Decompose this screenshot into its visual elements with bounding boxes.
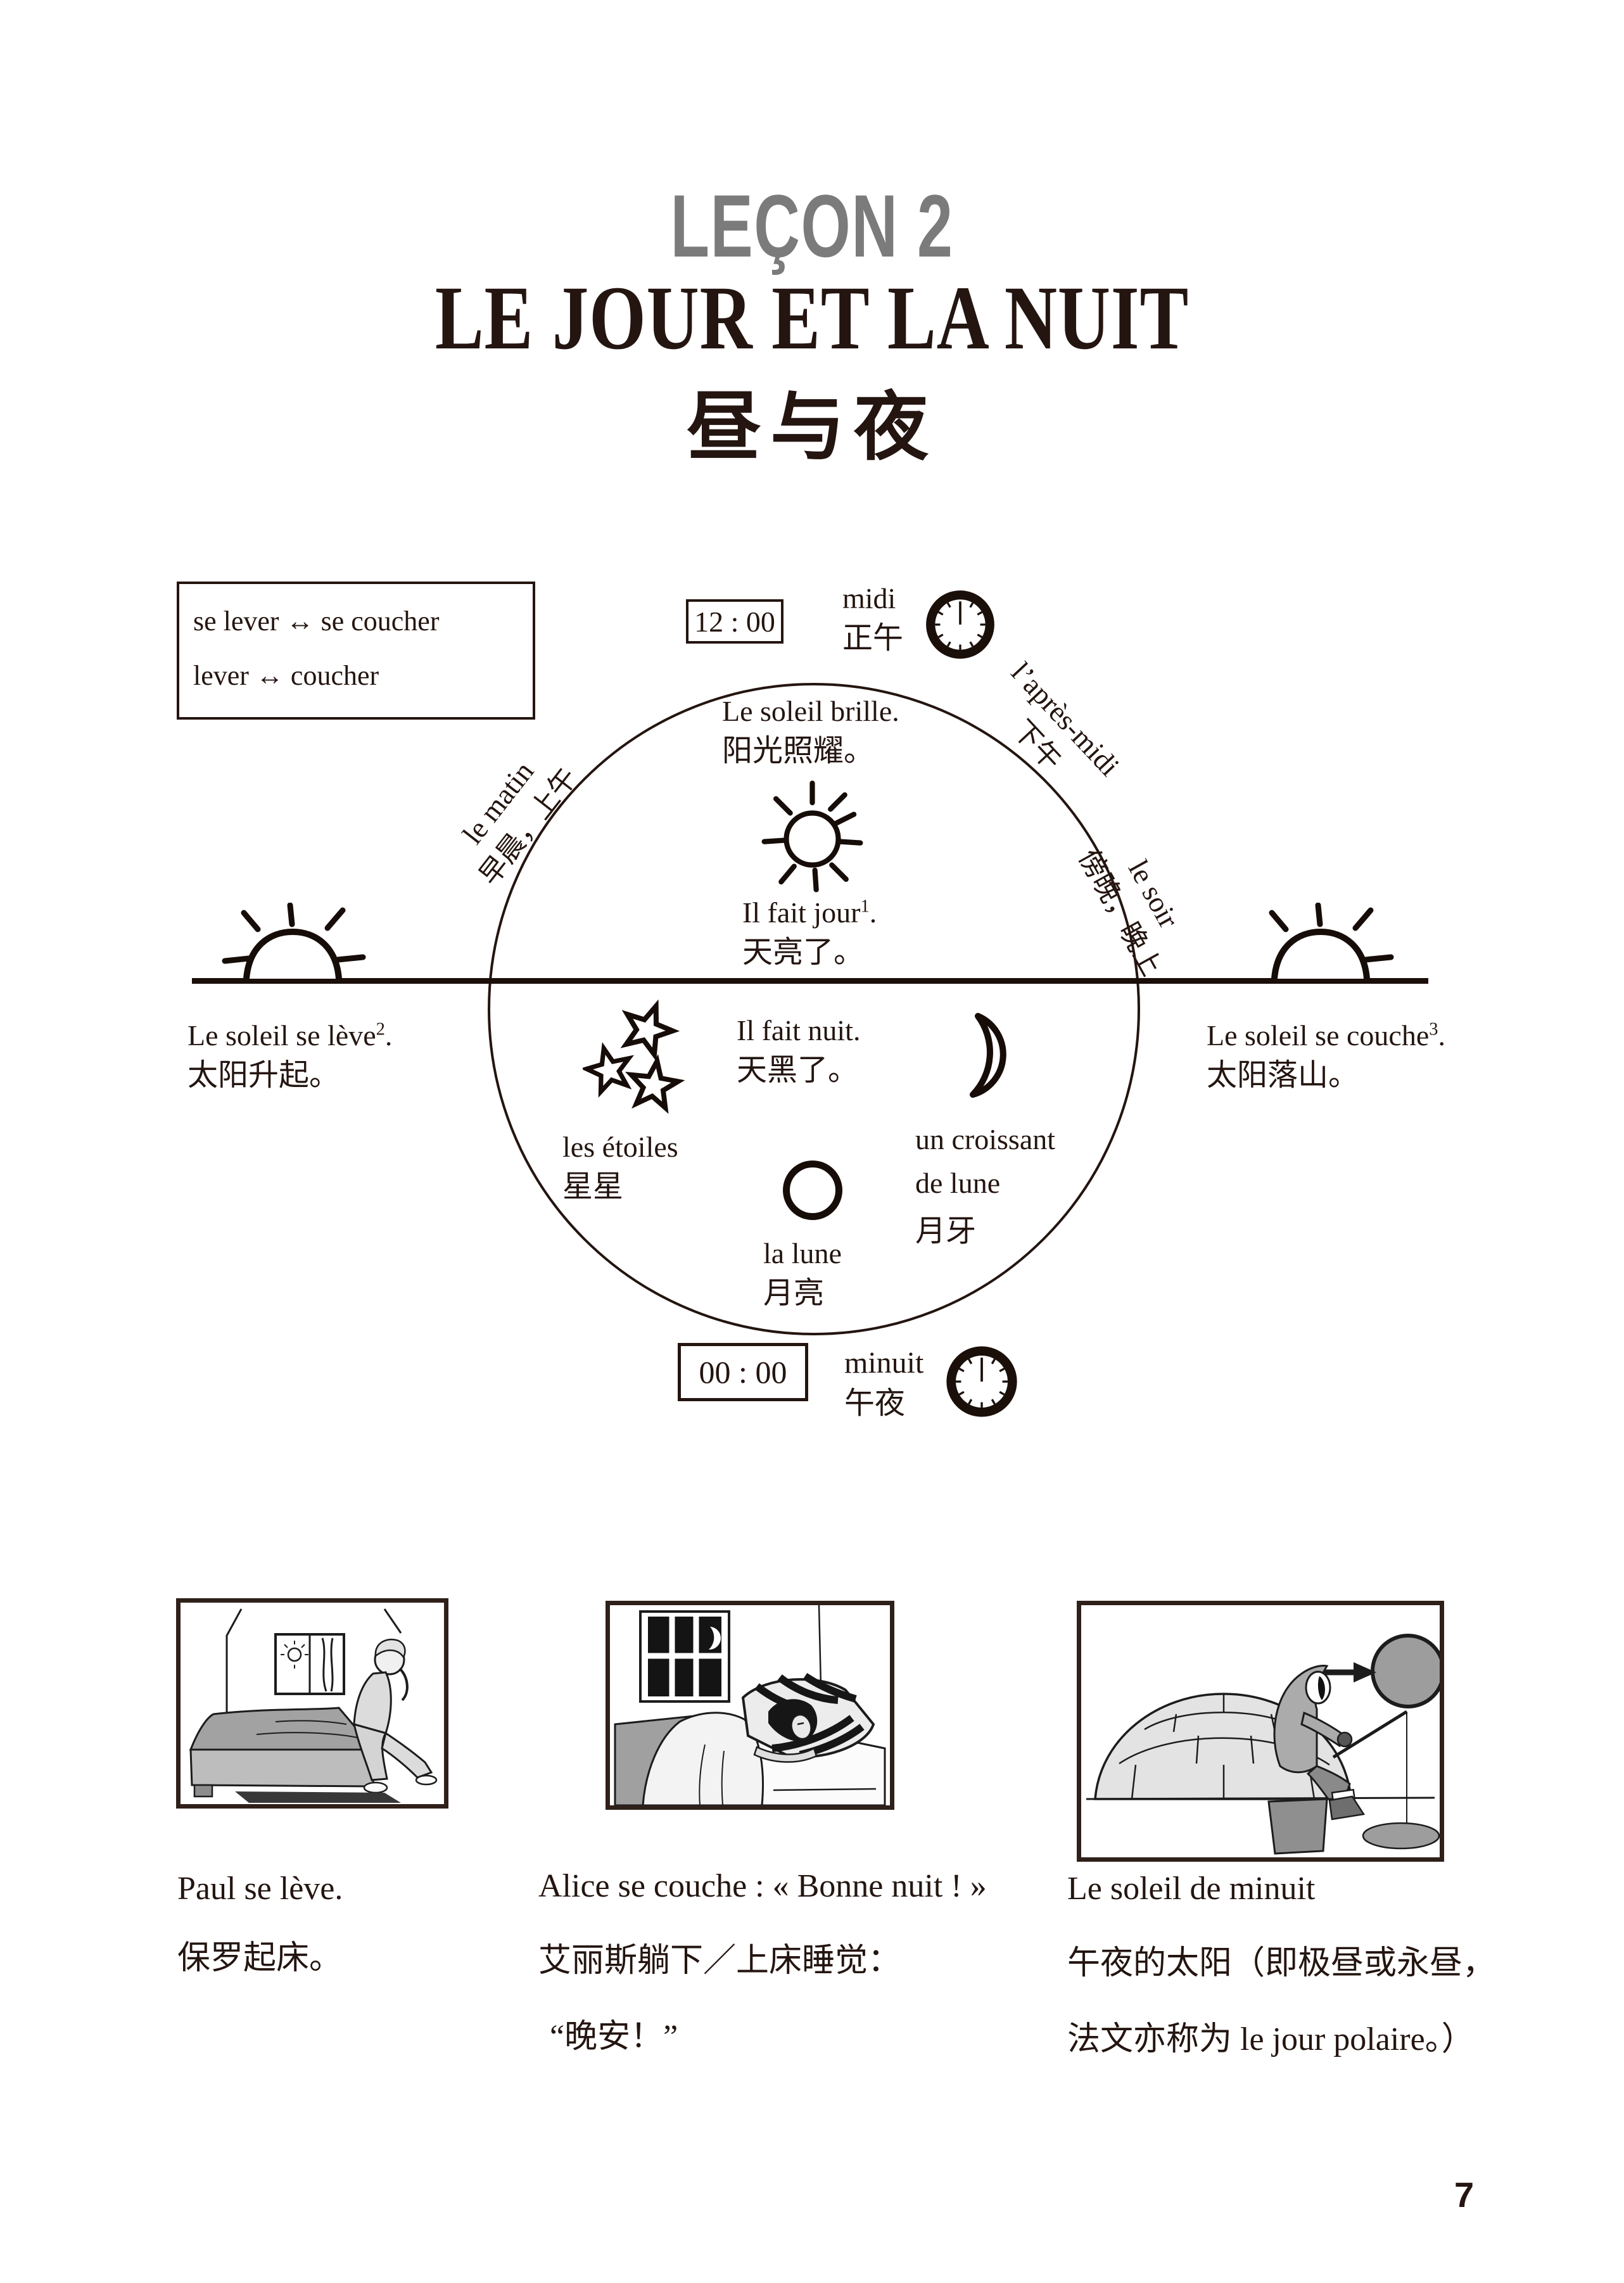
vocab-line-2: lever ↔ coucher	[193, 649, 533, 703]
ice-horizon-line	[1086, 1798, 1435, 1799]
moon-label-fr: la lune	[763, 1237, 842, 1269]
stars-label-zh: 星星	[562, 1172, 678, 1202]
figure-paul-drawing	[181, 1603, 444, 1804]
sun-shines-label: Le soleil brille. 阳光照耀。	[722, 697, 899, 766]
paul-torso	[354, 1672, 391, 1733]
it-is-night-zh: 天黑了。	[737, 1055, 860, 1086]
figure-alice	[606, 1601, 894, 1810]
hood-opening	[1306, 1672, 1330, 1703]
vocab-box: se lever ↔ se coucher lever ↔ coucher	[177, 582, 535, 720]
ice-hole	[1363, 1823, 1439, 1848]
paul-leg-right	[382, 1733, 431, 1777]
stars-label-fr: les étoiles	[562, 1131, 678, 1163]
caption-alice-fr: Alice se couche : « Bonne nuit ! »	[538, 1867, 987, 1905]
window-with-sun	[276, 1634, 344, 1694]
wall-line	[819, 1605, 821, 1686]
sunrise-label-zh: 太阳升起。	[187, 1060, 392, 1091]
sunrise-label-fr: Le soleil se lève2.	[187, 1019, 392, 1052]
textbook-page: LEÇON 2 LE JOUR ET LA NUIT 昼与夜 se lever …	[0, 0, 1624, 2283]
crescent-moon-icon	[949, 1011, 1012, 1100]
crescent-label-fr1: un croissant	[915, 1117, 1055, 1161]
crescent-label-fr2: de lune	[915, 1161, 1055, 1205]
midnight-sun-icon	[1373, 1636, 1440, 1707]
clock-midnight-icon	[942, 1342, 1022, 1421]
midi-time: 12 : 00	[694, 605, 775, 639]
sun-icon	[747, 774, 877, 904]
minuit-time-box: 00 : 00	[678, 1343, 808, 1401]
crescent-label: un croissant de lune 月牙	[915, 1117, 1055, 1254]
sunset-label-fr: Le soleil se couche3.	[1207, 1019, 1445, 1052]
figure-alice-drawing	[610, 1605, 890, 1805]
stool	[1269, 1799, 1327, 1854]
caption-alice-zh-line1: 艾丽斯躺下／上床睡觉：	[538, 1933, 901, 1981]
stars-label: les étoiles 星星	[562, 1133, 678, 1202]
it-is-night-label: Il fait nuit. 天黑了。	[737, 1016, 860, 1086]
moon-label: la lune 月亮	[763, 1239, 842, 1309]
caption-paul-fr: Paul se lève.	[177, 1870, 343, 1907]
stars-icon	[583, 1000, 694, 1117]
figure-midnight-sun-drawing	[1081, 1605, 1440, 1857]
it-is-day-label: Il fait jour1. 天亮了。	[742, 898, 877, 968]
footnote-3-marker: 3	[1429, 1020, 1438, 1040]
footnote-1-marker: 1	[861, 897, 870, 917]
it-is-day-zh: 天亮了。	[742, 938, 877, 968]
footnote-2-marker: 2	[376, 1020, 385, 1040]
midi-label-fr: midi	[842, 582, 896, 614]
full-moon-icon	[783, 1161, 842, 1220]
minuit-label-zh: 午夜	[844, 1389, 923, 1419]
floor-mat	[235, 1791, 401, 1803]
caption-paul-zh: 保罗起床。	[177, 1931, 342, 1978]
figure-paul	[176, 1598, 448, 1809]
caption-midnight-sun-zh-line2: 法文亦称为 le jour polaire。）	[1067, 2012, 1475, 2059]
lesson-number-heading: LEÇON 2	[227, 175, 1397, 277]
caption-midnight-sun-zh-line1: 午夜的太阳（即极昼或永昼，	[1067, 1936, 1495, 1983]
it-is-night-fr: Il fait nuit.	[737, 1014, 860, 1046]
crescent-label-zh: 月牙	[915, 1209, 1055, 1254]
ice-fishing-rod	[1333, 1712, 1439, 1848]
bed	[191, 1708, 374, 1797]
minuit-label: minuit 午夜	[844, 1348, 923, 1419]
caption-midnight-sun-fr: Le soleil de minuit	[1067, 1870, 1315, 1907]
inuit-fisher	[1269, 1666, 1364, 1854]
minuit-time: 00 : 00	[699, 1354, 787, 1390]
paul-arm	[400, 1669, 407, 1700]
page-title-chinese: 昼与夜	[0, 366, 1624, 474]
minuit-label-fr: minuit	[844, 1346, 923, 1380]
sun-shines-fr: Le soleil brille.	[722, 695, 899, 727]
sunset-label: Le soleil se couche3. 太阳落山。	[1207, 1021, 1445, 1091]
moon-label-zh: 月亮	[763, 1278, 842, 1309]
sunset-label-zh: 太阳落山。	[1207, 1060, 1445, 1091]
vocab-line-1: se lever ↔ se coucher	[193, 594, 533, 649]
sunrise-label: Le soleil se lève2. 太阳升起。	[187, 1021, 392, 1091]
midi-time-box: 12 : 00	[686, 599, 783, 644]
midi-label: midi 正午	[842, 584, 903, 654]
sun-shines-zh: 阳光照耀。	[722, 736, 899, 766]
sunset-icon	[1247, 903, 1395, 980]
sunrise-icon	[219, 903, 367, 980]
midi-label-zh: 正午	[842, 623, 903, 654]
boot	[1329, 1797, 1364, 1819]
page-number: 7	[1454, 2174, 1474, 2215]
mitten	[1338, 1733, 1352, 1746]
night-window	[640, 1612, 729, 1701]
page-title: LE JOUR ET LA NUIT	[162, 266, 1461, 371]
figure-midnight-sun	[1077, 1601, 1444, 1862]
caption-alice-zh-line2: “晚安！”	[550, 2009, 678, 2057]
it-is-day-fr: Il fait jour1.	[742, 896, 877, 929]
horizon-line	[192, 978, 1428, 984]
